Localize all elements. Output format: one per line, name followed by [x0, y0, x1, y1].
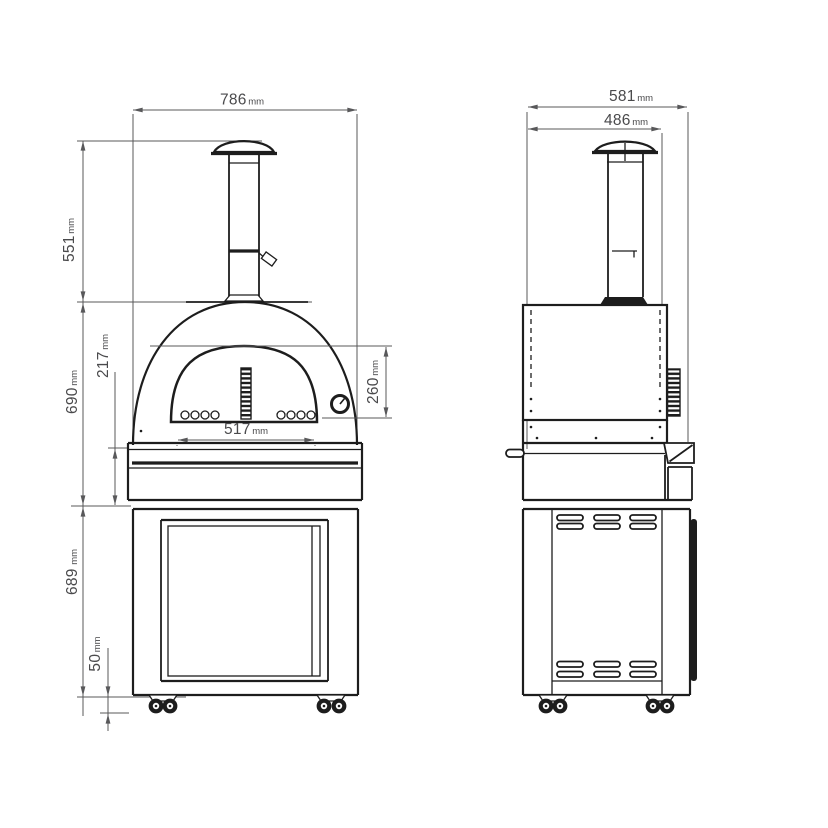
- caster-side-right: [646, 695, 675, 713]
- vent-slots-top: [557, 515, 656, 529]
- chimney-side: [592, 142, 658, 305]
- vent-slots-bottom: [557, 662, 656, 678]
- technical-drawing-canvas: 786mm 517mm 581mm 486mm 551mm 690mm 217m…: [0, 0, 828, 828]
- dim-label-overall-depth: 581mm: [609, 88, 653, 105]
- dim-label-cabinet-height: 689mm: [64, 549, 81, 595]
- chimney-front: [211, 141, 277, 301]
- dim-label-body-depth: 486mm: [604, 112, 648, 129]
- pizza-oven-dimension-drawing: 786mm 517mm 581mm 486mm 551mm 690mm 217m…: [0, 0, 828, 828]
- dim-label-caster-clearance: 50mm: [87, 636, 104, 671]
- caster-side-left: [539, 695, 568, 713]
- side-handle-bar: [691, 519, 698, 681]
- dim-label-chimney-height: 551mm: [61, 218, 78, 262]
- side-towel-bar: [506, 450, 524, 458]
- door-handle-side: [668, 369, 681, 416]
- rear-bracket: [664, 443, 694, 463]
- flue-base-flange: [225, 295, 263, 301]
- chimney-cap: [214, 141, 274, 152]
- side-view: [506, 142, 697, 714]
- caster-front-left: [149, 695, 178, 713]
- flue-base-flange-side: [600, 297, 648, 305]
- dim-label-oven-body-height: 690mm: [64, 370, 81, 414]
- dim-label-overall-width: 786mm: [220, 92, 264, 109]
- dim-label-mouth-height: 260mm: [365, 360, 382, 404]
- caster-front-right: [317, 695, 347, 713]
- oven-box-side: [523, 305, 680, 443]
- worktop-side: [506, 443, 694, 500]
- door-handle: [241, 368, 251, 419]
- cabinet-door: [168, 526, 320, 676]
- flue-damper-handle: [261, 252, 276, 266]
- dim-label-worktop-height: 217mm: [95, 334, 112, 378]
- worktop-front: [128, 443, 362, 500]
- thermometer-icon: [332, 396, 349, 413]
- base-cabinet-front: [133, 509, 358, 695]
- base-cabinet-side: [523, 509, 697, 695]
